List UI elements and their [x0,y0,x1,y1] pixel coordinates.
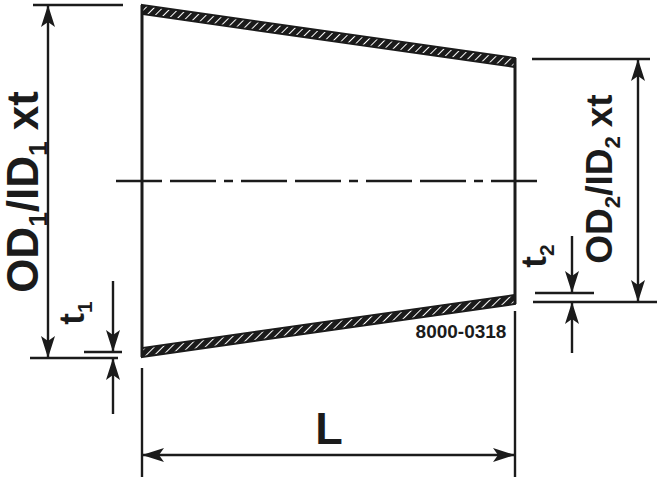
reducer-top-wall-hatched [142,5,515,67]
technical-drawing-canvas: OD1/ID1xt OD2/ID2xt t1 t2 L 8000-0318 [0,0,659,477]
od2-label: OD2/ID2xt [579,94,625,263]
reducer-drawing-svg: OD1/ID1xt OD2/ID2xt t1 t2 L 8000-0318 [0,0,659,477]
t1-label: t1 [52,301,96,325]
t2-label: t2 [514,244,558,267]
part-number: 8000-0318 [416,321,507,342]
od1-label: OD1/ID1xt [0,91,53,293]
length-label: L [315,403,343,454]
